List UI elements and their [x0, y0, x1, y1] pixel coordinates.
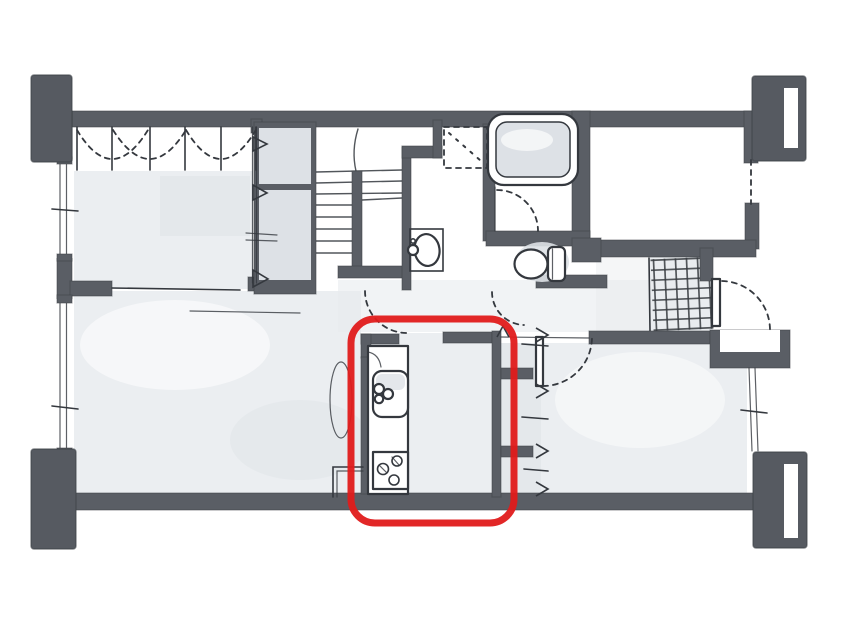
- entrance-step-edge: [649, 258, 650, 331]
- entrance-door-arc: [722, 281, 770, 330]
- wall-void-bottom: [580, 240, 756, 257]
- pillar-bottom-right: [753, 452, 807, 548]
- washing-machine-pan: [444, 127, 487, 168]
- toilet: [515, 242, 570, 282]
- pillar-bottom-left: [31, 449, 76, 549]
- wall-closet-boxes: [254, 122, 316, 294]
- entrance-door-leaf: [712, 279, 720, 326]
- pillar-top-left: [31, 75, 72, 162]
- bathroom-door-arc: [497, 190, 538, 231]
- closet-folding-doors: [77, 127, 256, 170]
- floor-plan-drawing: [0, 0, 850, 640]
- pillar-top-right: [752, 76, 806, 161]
- shoe-cabinet: [710, 330, 790, 368]
- floor-plan-canvas: Hand-drawn watercolor-style apartment fl…: [0, 0, 850, 640]
- gas-stove: [373, 452, 408, 489]
- wall-bottom: [57, 493, 758, 510]
- bathtub: [488, 114, 578, 185]
- stair-direction-line: [354, 129, 358, 171]
- bedroom-door-leaf: [536, 337, 543, 386]
- wall-top: [57, 111, 758, 127]
- washbasin: [408, 229, 443, 271]
- kitchen-sink: [373, 371, 408, 417]
